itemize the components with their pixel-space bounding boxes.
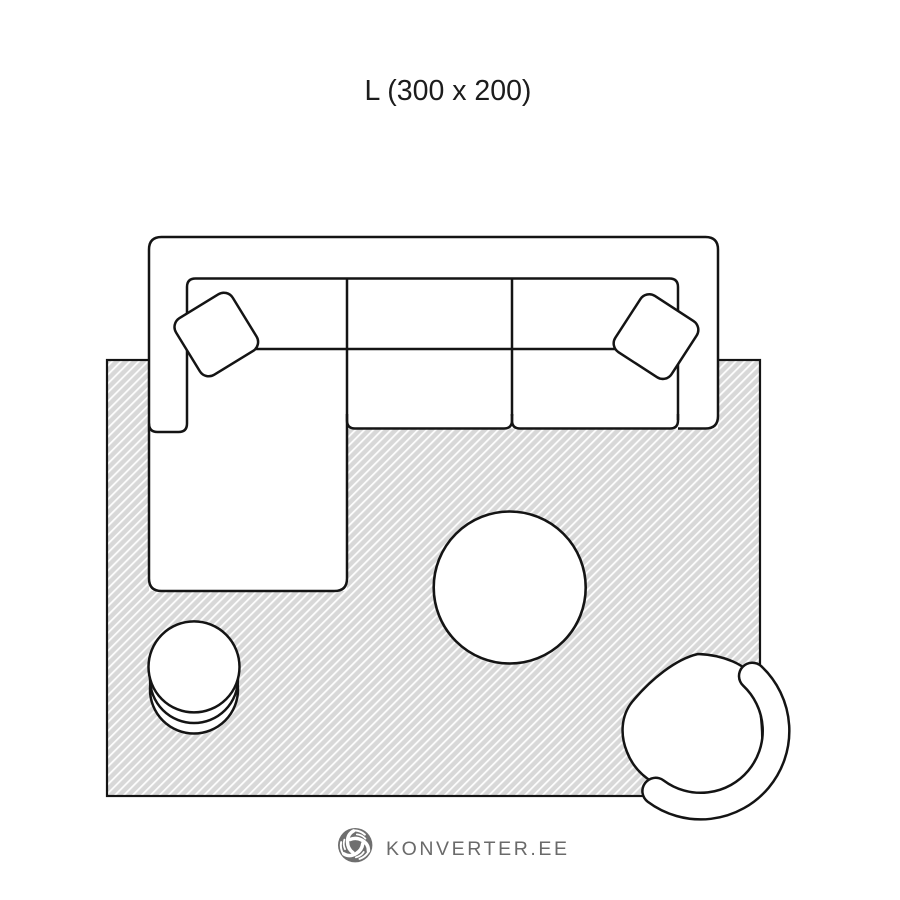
svg-text:KONVERTER.EE: KONVERTER.EE [386,838,570,860]
svg-text:L (300 x 200): L (300 x 200) [365,75,532,107]
